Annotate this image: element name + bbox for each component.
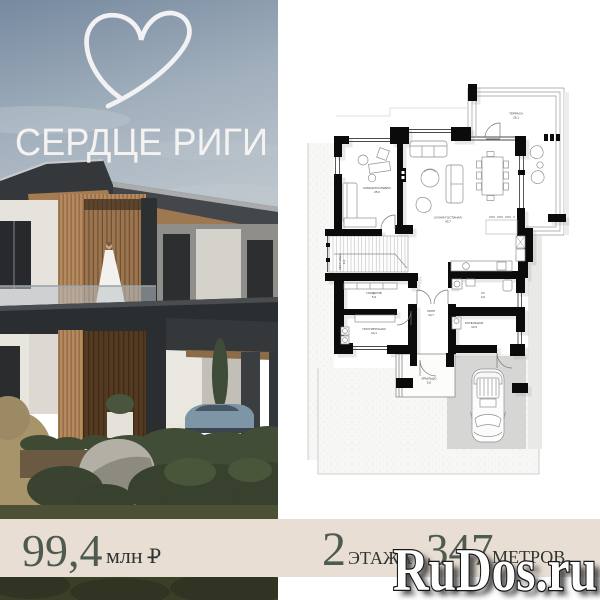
svg-text:4,6: 4,6 bbox=[481, 295, 486, 299]
svg-text:RuDos.ru: RuDos.ru bbox=[393, 537, 597, 600]
svg-text:10,1: 10,1 bbox=[371, 331, 377, 335]
svg-text:9,4: 9,4 bbox=[342, 260, 346, 265]
svg-text:СЕРДЦЕ РИГИ: СЕРДЦЕ РИГИ bbox=[15, 122, 268, 164]
svg-text:99,4: 99,4 bbox=[22, 525, 103, 576]
svg-text:43,7: 43,7 bbox=[445, 220, 451, 224]
svg-text:10,7: 10,7 bbox=[428, 313, 434, 317]
svg-text:10,5: 10,5 bbox=[471, 325, 477, 329]
svg-text:2: 2 bbox=[322, 523, 346, 576]
svg-text:25,6: 25,6 bbox=[374, 190, 380, 194]
svg-text:млн: млн bbox=[106, 543, 143, 568]
svg-text:5,0: 5,0 bbox=[427, 381, 432, 385]
svg-text:26,1: 26,1 bbox=[513, 116, 519, 120]
svg-text:P: P bbox=[149, 543, 161, 568]
svg-text:5,9: 5,9 bbox=[372, 295, 377, 299]
